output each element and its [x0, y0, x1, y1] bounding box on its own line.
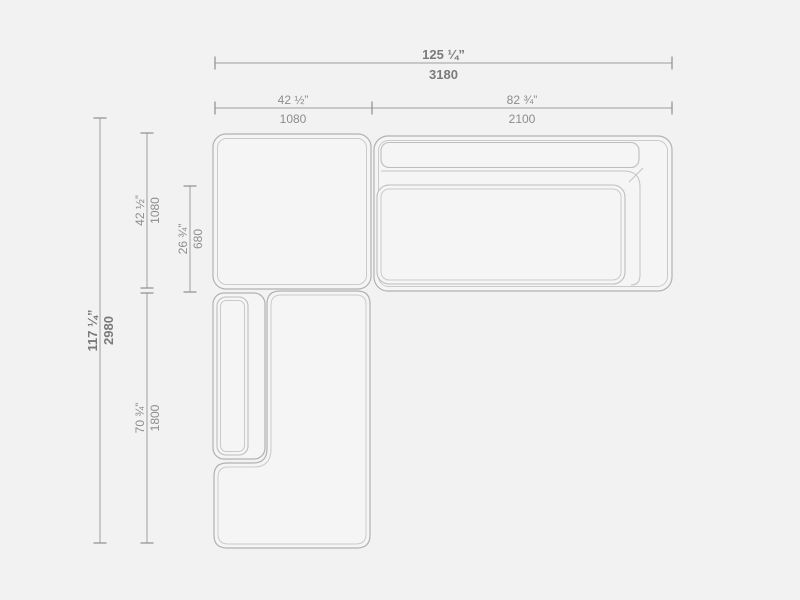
diagram-canvas: 125 ¼” 3180 42 ½” 1080 82 ¾” 2100 117 ¼”…	[0, 0, 800, 600]
dim-chaise-module-depth-inches: 70 ¾”	[133, 403, 147, 434]
armrest-cushion	[217, 297, 248, 455]
dim-corner-module-depth-inches: 42 ½”	[133, 195, 147, 226]
dim-overall-depth: 117 ¼” 2980	[85, 118, 116, 543]
sofa-module	[374, 136, 672, 291]
dim-overall-width-mm: 3180	[429, 67, 458, 82]
dim-seat-depth: 26 ¾” 680	[176, 186, 205, 292]
dim-overall-width: 125 ¼” 3180	[215, 47, 672, 82]
dim-sofa-module-width-inches: 82 ¾”	[507, 93, 538, 107]
dim-corner-module-width-mm: 1080	[280, 112, 307, 126]
dim-chaise-module-depth-mm: 1800	[148, 404, 162, 431]
dim-seat-depth-mm: 680	[191, 229, 205, 249]
dim-seat-depth-inches: 26 ¾”	[176, 224, 190, 255]
chaise-module	[213, 291, 370, 548]
seat-cushion	[377, 185, 625, 284]
corner-module-outline	[213, 134, 371, 289]
back-cushion	[381, 143, 639, 168]
dim-overall-depth-mm: 2980	[101, 316, 116, 345]
dim-sofa-module-width: 82 ¾” 2100	[372, 93, 672, 126]
dim-corner-module-width: 42 ½” 1080	[215, 93, 372, 126]
dim-sofa-module-width-mm: 2100	[509, 112, 536, 126]
dim-corner-module-depth: 42 ½” 1080	[133, 133, 162, 288]
dim-overall-depth-inches: 117 ¼”	[85, 310, 100, 352]
dim-overall-width-inches: 125 ¼”	[422, 47, 465, 62]
corner-module	[213, 134, 371, 289]
sectional-sofa-dimension-drawing: 125 ¼” 3180 42 ½” 1080 82 ¾” 2100 117 ¼”…	[0, 0, 800, 600]
dim-corner-module-width-inches: 42 ½”	[278, 93, 309, 107]
dim-chaise-module-depth: 70 ¾” 1800	[133, 293, 162, 543]
dim-corner-module-depth-mm: 1080	[148, 197, 162, 224]
